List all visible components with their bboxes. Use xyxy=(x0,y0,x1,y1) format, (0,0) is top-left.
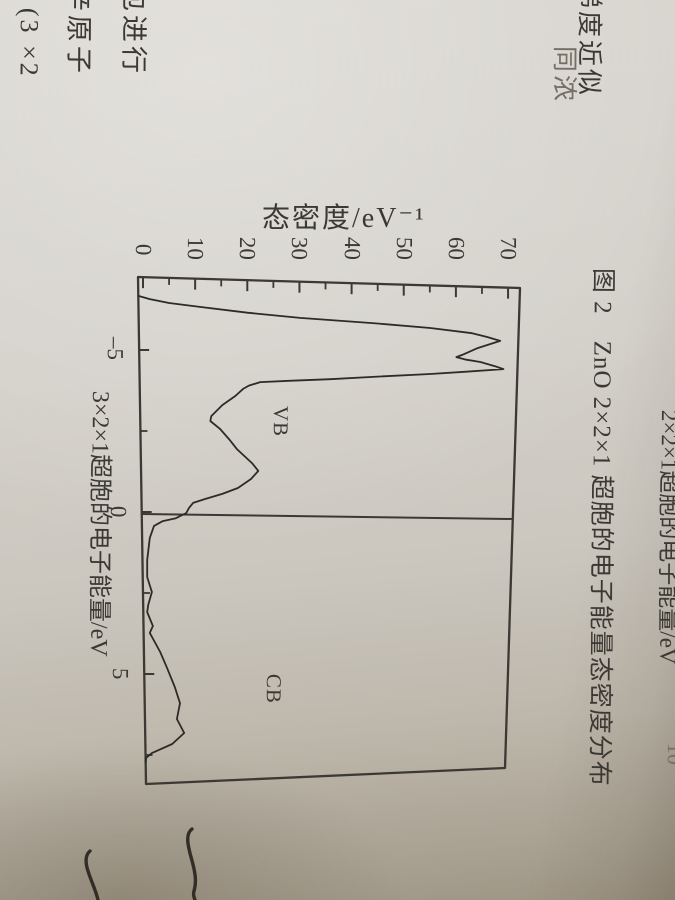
page-number: 10 xyxy=(664,743,675,765)
body-text-fragment-3: (3 ×2 xyxy=(16,8,42,79)
dos-tick-label: 60 xyxy=(445,237,468,260)
valence-band-label: VB xyxy=(270,406,291,437)
dos-tick-label: 50 xyxy=(393,237,416,260)
figure3-xaxis-label: 3×2×1超胞的电子能量/eV xyxy=(86,391,112,657)
photographed-paper-page: { "page": { "ylabel": "态密度/eV⁻¹", "vb_la… xyxy=(0,0,675,900)
fermi-level-line xyxy=(142,514,513,519)
body-text-fragment-4: 梯度近似 xyxy=(575,0,602,98)
dos-axis-title: 态密度/eV⁻¹ xyxy=(262,196,426,236)
dos-tick-label: 10 xyxy=(184,237,207,260)
body-text-fragment-2: 辛原子 xyxy=(64,0,92,77)
dos-tick-label: 70 xyxy=(497,237,520,260)
pen-stroke-left xyxy=(86,851,98,900)
dos-tick-label: 0 xyxy=(132,243,155,255)
dos-curve xyxy=(138,296,503,762)
body-text-fragment-5: 同浓 xyxy=(551,46,577,104)
figure2-caption: 图 2 ZnO 2×2×1 超胞的电子能量态密度分布 xyxy=(586,268,615,787)
energy-tick-label: 0 xyxy=(107,505,130,517)
figure2-xaxis-label: 2×2×1超胞的电子能量/eV xyxy=(656,410,675,665)
dos-tick-label: 30 xyxy=(288,237,311,260)
dos-tick-label: 20 xyxy=(236,237,259,260)
energy-tick-label: –5 xyxy=(104,337,127,360)
pen-stroke-right xyxy=(188,829,196,900)
body-text-fragment-1: 包进行 xyxy=(119,0,147,77)
conduction-band-label: CB xyxy=(263,674,284,704)
plot-frame xyxy=(138,277,520,784)
dos-tick-label: 40 xyxy=(340,237,363,260)
energy-tick-label: 5 xyxy=(109,667,132,679)
